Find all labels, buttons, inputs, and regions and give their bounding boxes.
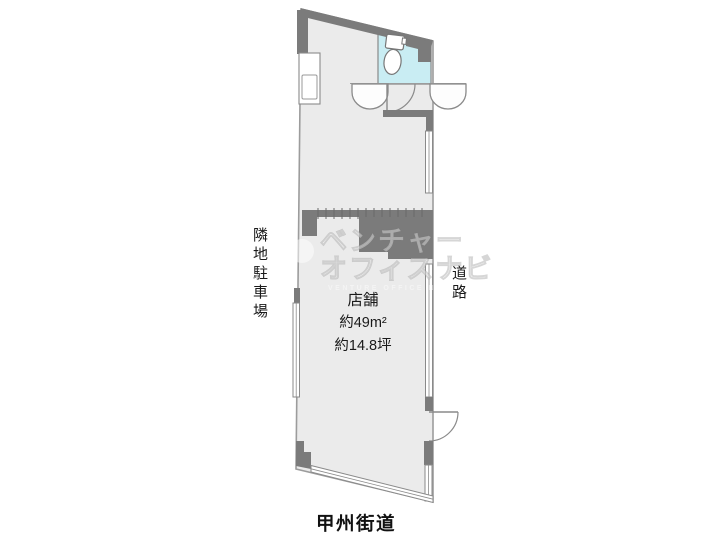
floorplan-drawing — [0, 0, 720, 541]
door-swing-arc — [430, 84, 466, 109]
room-area-tsubo: 約14.8坪 — [318, 335, 408, 358]
room-area-m2: 約49m² — [318, 312, 408, 335]
counter-fixture — [299, 53, 320, 104]
wall-segment — [297, 10, 308, 54]
wall-segment — [383, 110, 433, 117]
wall-segment — [425, 397, 433, 411]
window — [426, 264, 433, 397]
window — [426, 131, 433, 193]
wall-block — [302, 217, 317, 236]
wall-segment — [424, 441, 433, 465]
label-koshu-kaido: 甲州街道 — [316, 510, 396, 536]
dividing-wall — [302, 210, 433, 217]
room-name-label: 店舗 — [318, 289, 408, 312]
window — [293, 303, 300, 397]
label-adjacent-parking: 隣地駐車場 — [249, 227, 270, 337]
room-info: 店舗 約49m² 約14.8坪 — [318, 289, 408, 358]
wall-segment — [294, 288, 300, 303]
label-road: 道路 — [448, 265, 469, 313]
floorplan-canvas: 店舗 約49m² 約14.8坪 隣地駐車場 道路 甲州街道 ベンチャー オフィス… — [0, 0, 720, 541]
